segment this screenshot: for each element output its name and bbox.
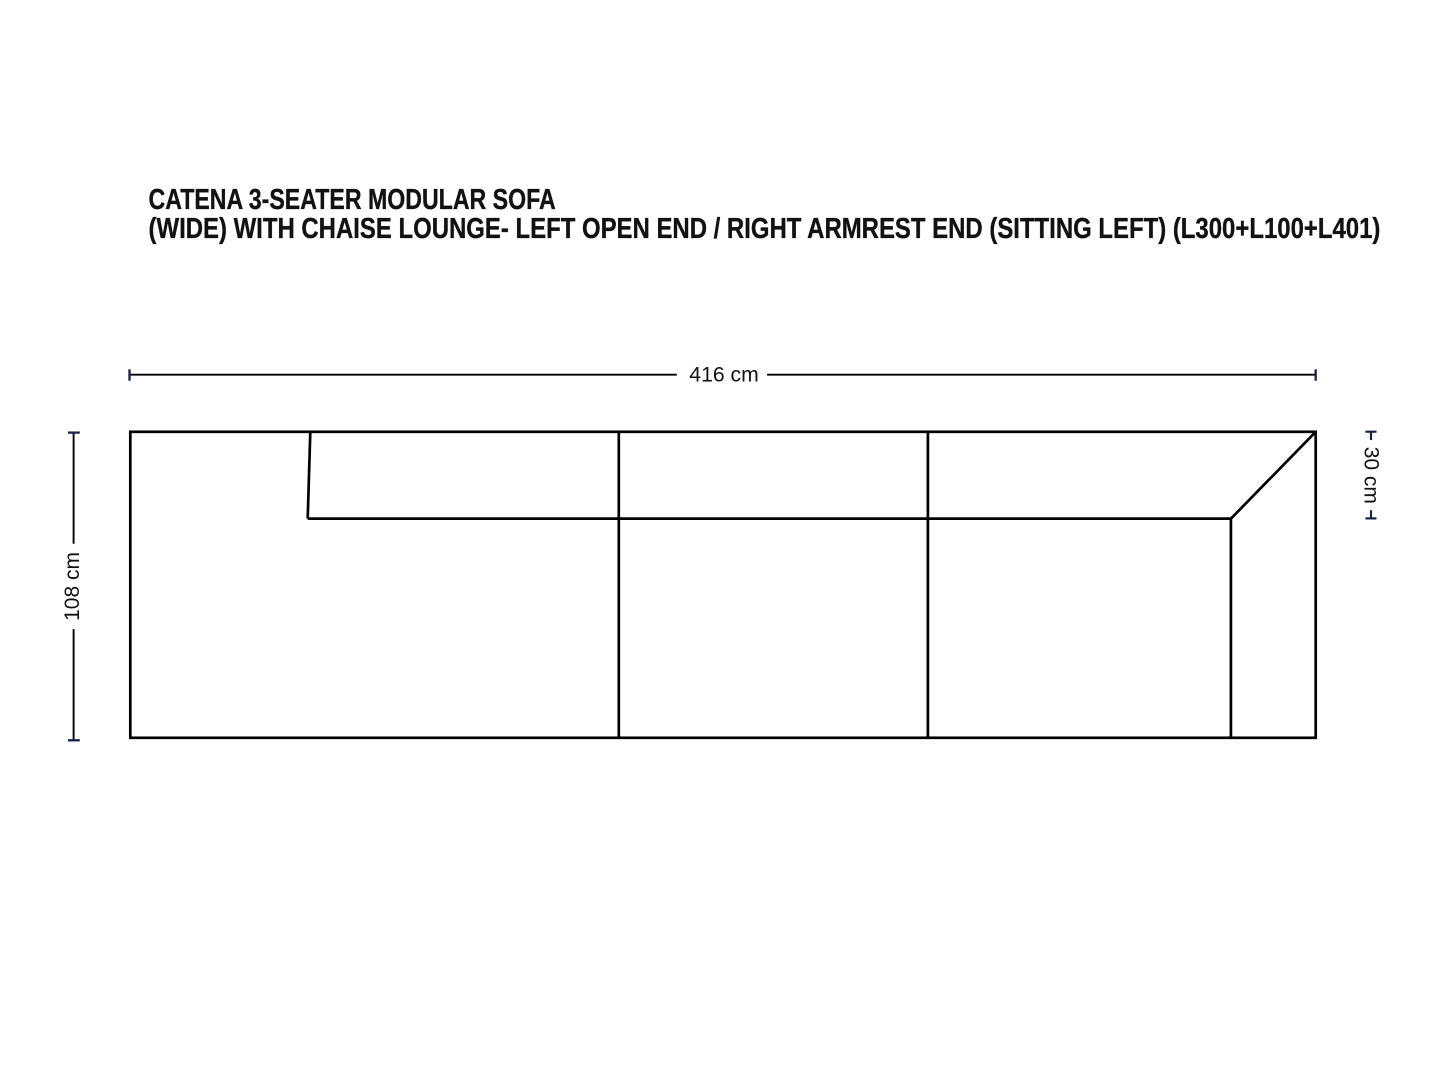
svg-text:30 cm: 30 cm [1360, 447, 1383, 504]
svg-text:(WIDE) WITH CHAISE LOUNGE- LEF: (WIDE) WITH CHAISE LOUNGE- LEFT OPEN END… [149, 213, 1381, 245]
svg-text:108 cm: 108 cm [61, 552, 84, 621]
svg-text:416 cm: 416 cm [689, 363, 759, 386]
svg-text:CATENA 3-SEATER MODULAR SOFA: CATENA 3-SEATER MODULAR SOFA [149, 184, 556, 216]
